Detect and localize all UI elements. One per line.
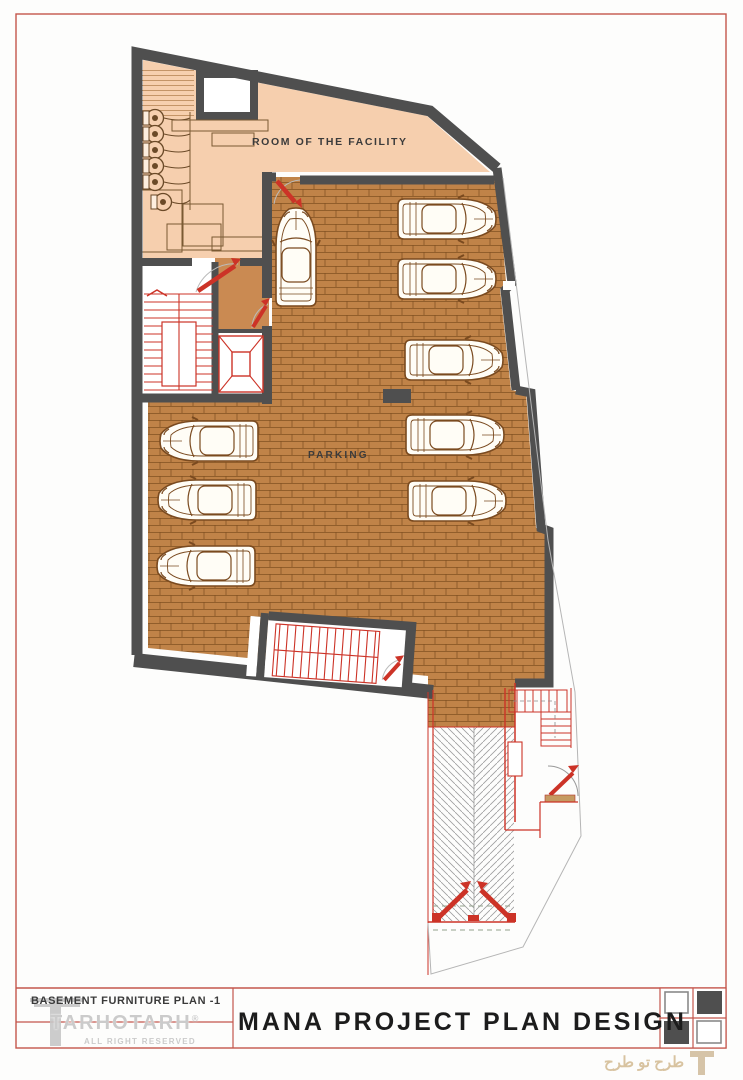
car-icon [160,417,258,465]
watermark: طرح تو طرح [604,1049,714,1075]
drawing-name: BASEMENT FURNITURE PLAN -1 [31,995,221,1007]
car-icon [408,477,506,525]
door-leaf-icon [550,773,573,795]
parking-label: PARKING [308,450,369,461]
car-icon [157,542,255,590]
floor-plan-canvas: ROOM OF THE FACILITY PARKING [0,0,743,1080]
watermark-text: طرح تو طرح [604,1053,684,1071]
drawing-sheet: ROOM OF THE FACILITY PARKING BASEMENT FU… [0,0,743,1080]
elevator-icon [219,336,263,392]
car-icon [158,476,256,524]
car-icon [406,411,504,459]
facility-room-label: ROOM OF THE FACILITY [252,136,408,148]
brand-logo-text: TARHOTARH® [50,1012,200,1035]
car-icon [398,255,496,303]
project-title: MANA PROJECT PLAN DESIGN [238,1001,654,1043]
car-icon [405,336,503,384]
rights-text: ALL RIGHT RESERVED [84,1037,196,1046]
car-icon [272,208,320,306]
registered-mark: ® [192,1013,201,1023]
column [383,389,411,403]
wall-window-gap [503,281,515,290]
vestibule-floor [213,258,269,332]
car-icon [398,195,496,243]
exterior-door [505,742,579,838]
vent-hatch [140,70,194,116]
brand-name: TARHOTARH [50,1012,192,1034]
watermark-t-icon [690,1049,714,1075]
